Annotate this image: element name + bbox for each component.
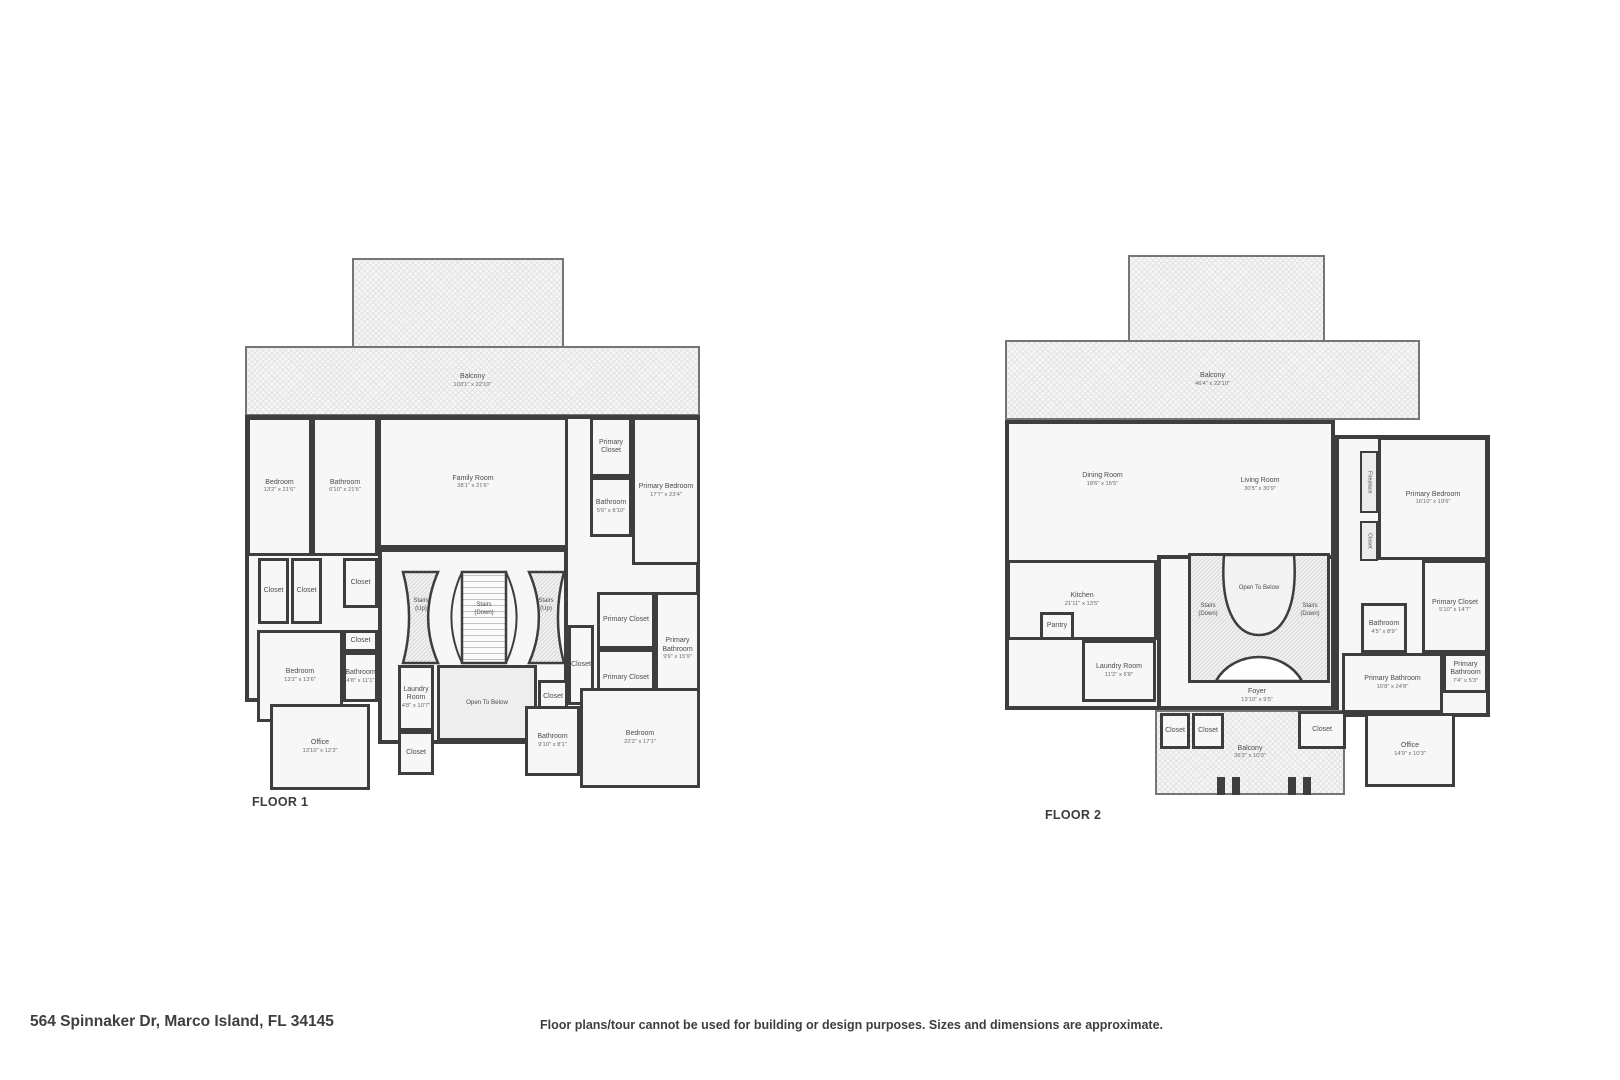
floor-2-kitchen: Kitchen21'11" x 13'5" [1007,560,1157,640]
floor-1-plan: Balcony103'1" x 22'10"Bedroom13'2" x 21'… [245,258,700,818]
floor-1-bathroom-3: Bathroom4'8" x 11'1" [343,652,378,702]
floor-2-balcony-upper [1128,255,1325,340]
floor-2-primary-bedroom: Primary Bedroom16'10" x 19'6" [1378,437,1488,560]
floor-1-open-to-below: Open To Below [437,665,537,741]
open-to-below-label: Open To Below [1224,585,1294,593]
floor-2-foyer: Foyer13'10" x 9'5" [1197,683,1317,709]
floor-1-primary-closet-b: Primary Closet [597,592,655,649]
floor-2-primary-bathroom: Primary Bathroom16'8" x 24'8" [1342,653,1443,713]
floor-1-balcony-upper [352,258,564,346]
floor-1-closet-1: Closet [258,558,289,624]
floor-2-railing-post-1 [1217,777,1225,795]
floor-2-pantry: Pantry [1040,612,1074,640]
floor-2-fireplace: Fireplace [1360,451,1378,513]
floor-2-primary-closet: Primary Closet5'10" x 14'7" [1422,560,1488,653]
floor-2-laundry-room: Laundry Room11'2" x 6'8" [1082,640,1156,702]
floor-2-primary-bathroom-2: Primary Bathroom7'4" x 5'3" [1443,653,1488,693]
disclaimer-text: Floor plans/tour cannot be used for buil… [540,1018,1163,1032]
floor-1-office: Office13'10" x 12'3" [270,704,370,790]
floor-2-office: Office14'9" x 10'3" [1365,713,1455,787]
floor-1-closet-5: Closet [398,731,434,775]
floor-2-railing-post-4 [1303,777,1311,795]
floor-2-rooms: Balcony46'4" x 22'10"Dining Room18'6" x … [1005,255,1490,830]
floor-1-bathroom-2: Bathroom5'6" x 8'10" [590,477,632,537]
floor-1-rooms: Balcony103'1" x 22'10"Bedroom13'2" x 21'… [245,258,700,818]
floor-2-bathroom: Bathroom4'5" x 8'9" [1361,603,1407,653]
floor-2-closet-4: Closet [1360,521,1378,561]
floor-1-laundry-room: Laundry Room4'8" x 10'7" [398,665,434,731]
floor-2-railing-post-2 [1232,777,1240,795]
floor-2-railing-post-3 [1288,777,1296,795]
floor-plan-sheet: Balcony103'1" x 22'10"Bedroom13'2" x 21'… [0,0,1620,1080]
floor-1-balcony: Balcony103'1" x 22'10" [245,346,700,416]
floor-2-closet-3: Closet [1298,711,1346,749]
floor-2-closet-2: Closet [1192,713,1224,749]
property-address: 564 Spinnaker Dr, Marco Island, FL 34145 [30,1013,334,1031]
floor-2-curved-staircase: Stairs (Down) Open To Below Stairs (Down… [1188,553,1330,683]
stairs-down-center-label: Stairs (Down) [458,602,510,618]
floor-1-primary-bedroom: Primary Bedroom17'7" x 23'4" [632,417,700,565]
floor-1-closet-4: Closet [343,630,378,652]
floor-1-closet-2: Closet [291,558,322,624]
floor-1-primary-closet-a: Primary Closet [590,417,632,477]
floor-1-curved-staircase: Stairs (Up) Stairs (Down) Stairs (Up) [400,570,567,665]
floor-1-bedroom-1: Bedroom13'2" x 21'6" [247,417,312,556]
floor-1-bathroom-4: Bathroom9'10" x 8'1" [525,706,580,776]
floor-1-bedroom-3: Bedroom22'2" x 17'1" [580,688,700,788]
stairs-up-right-label: Stairs (Up) [527,598,565,614]
stairs-up-left-label: Stairs (Up) [402,598,440,614]
floor-2-balcony: Balcony46'4" x 22'10" [1005,340,1420,420]
stairs-down-right-label: Stairs (Down) [1290,603,1330,619]
floor-2-plan: Balcony46'4" x 22'10"Dining Room18'6" x … [1005,255,1490,830]
floor-2-closet-1: Closet [1160,713,1190,749]
floor-2-label: FLOOR 2 [1045,808,1101,822]
floor-1-closet-3: Closet [343,558,378,608]
floor-1-family-room: Family Room38'1" x 21'6" [378,417,568,548]
floor-1-bathroom-1: Bathroom6'10" x 21'6" [312,417,378,556]
floor-1-label: FLOOR 1 [252,795,308,809]
floor-2-living-room: Living Room30'5" x 30'9" [1155,425,1365,545]
stairs-down-left-label: Stairs (Down) [1188,603,1228,619]
